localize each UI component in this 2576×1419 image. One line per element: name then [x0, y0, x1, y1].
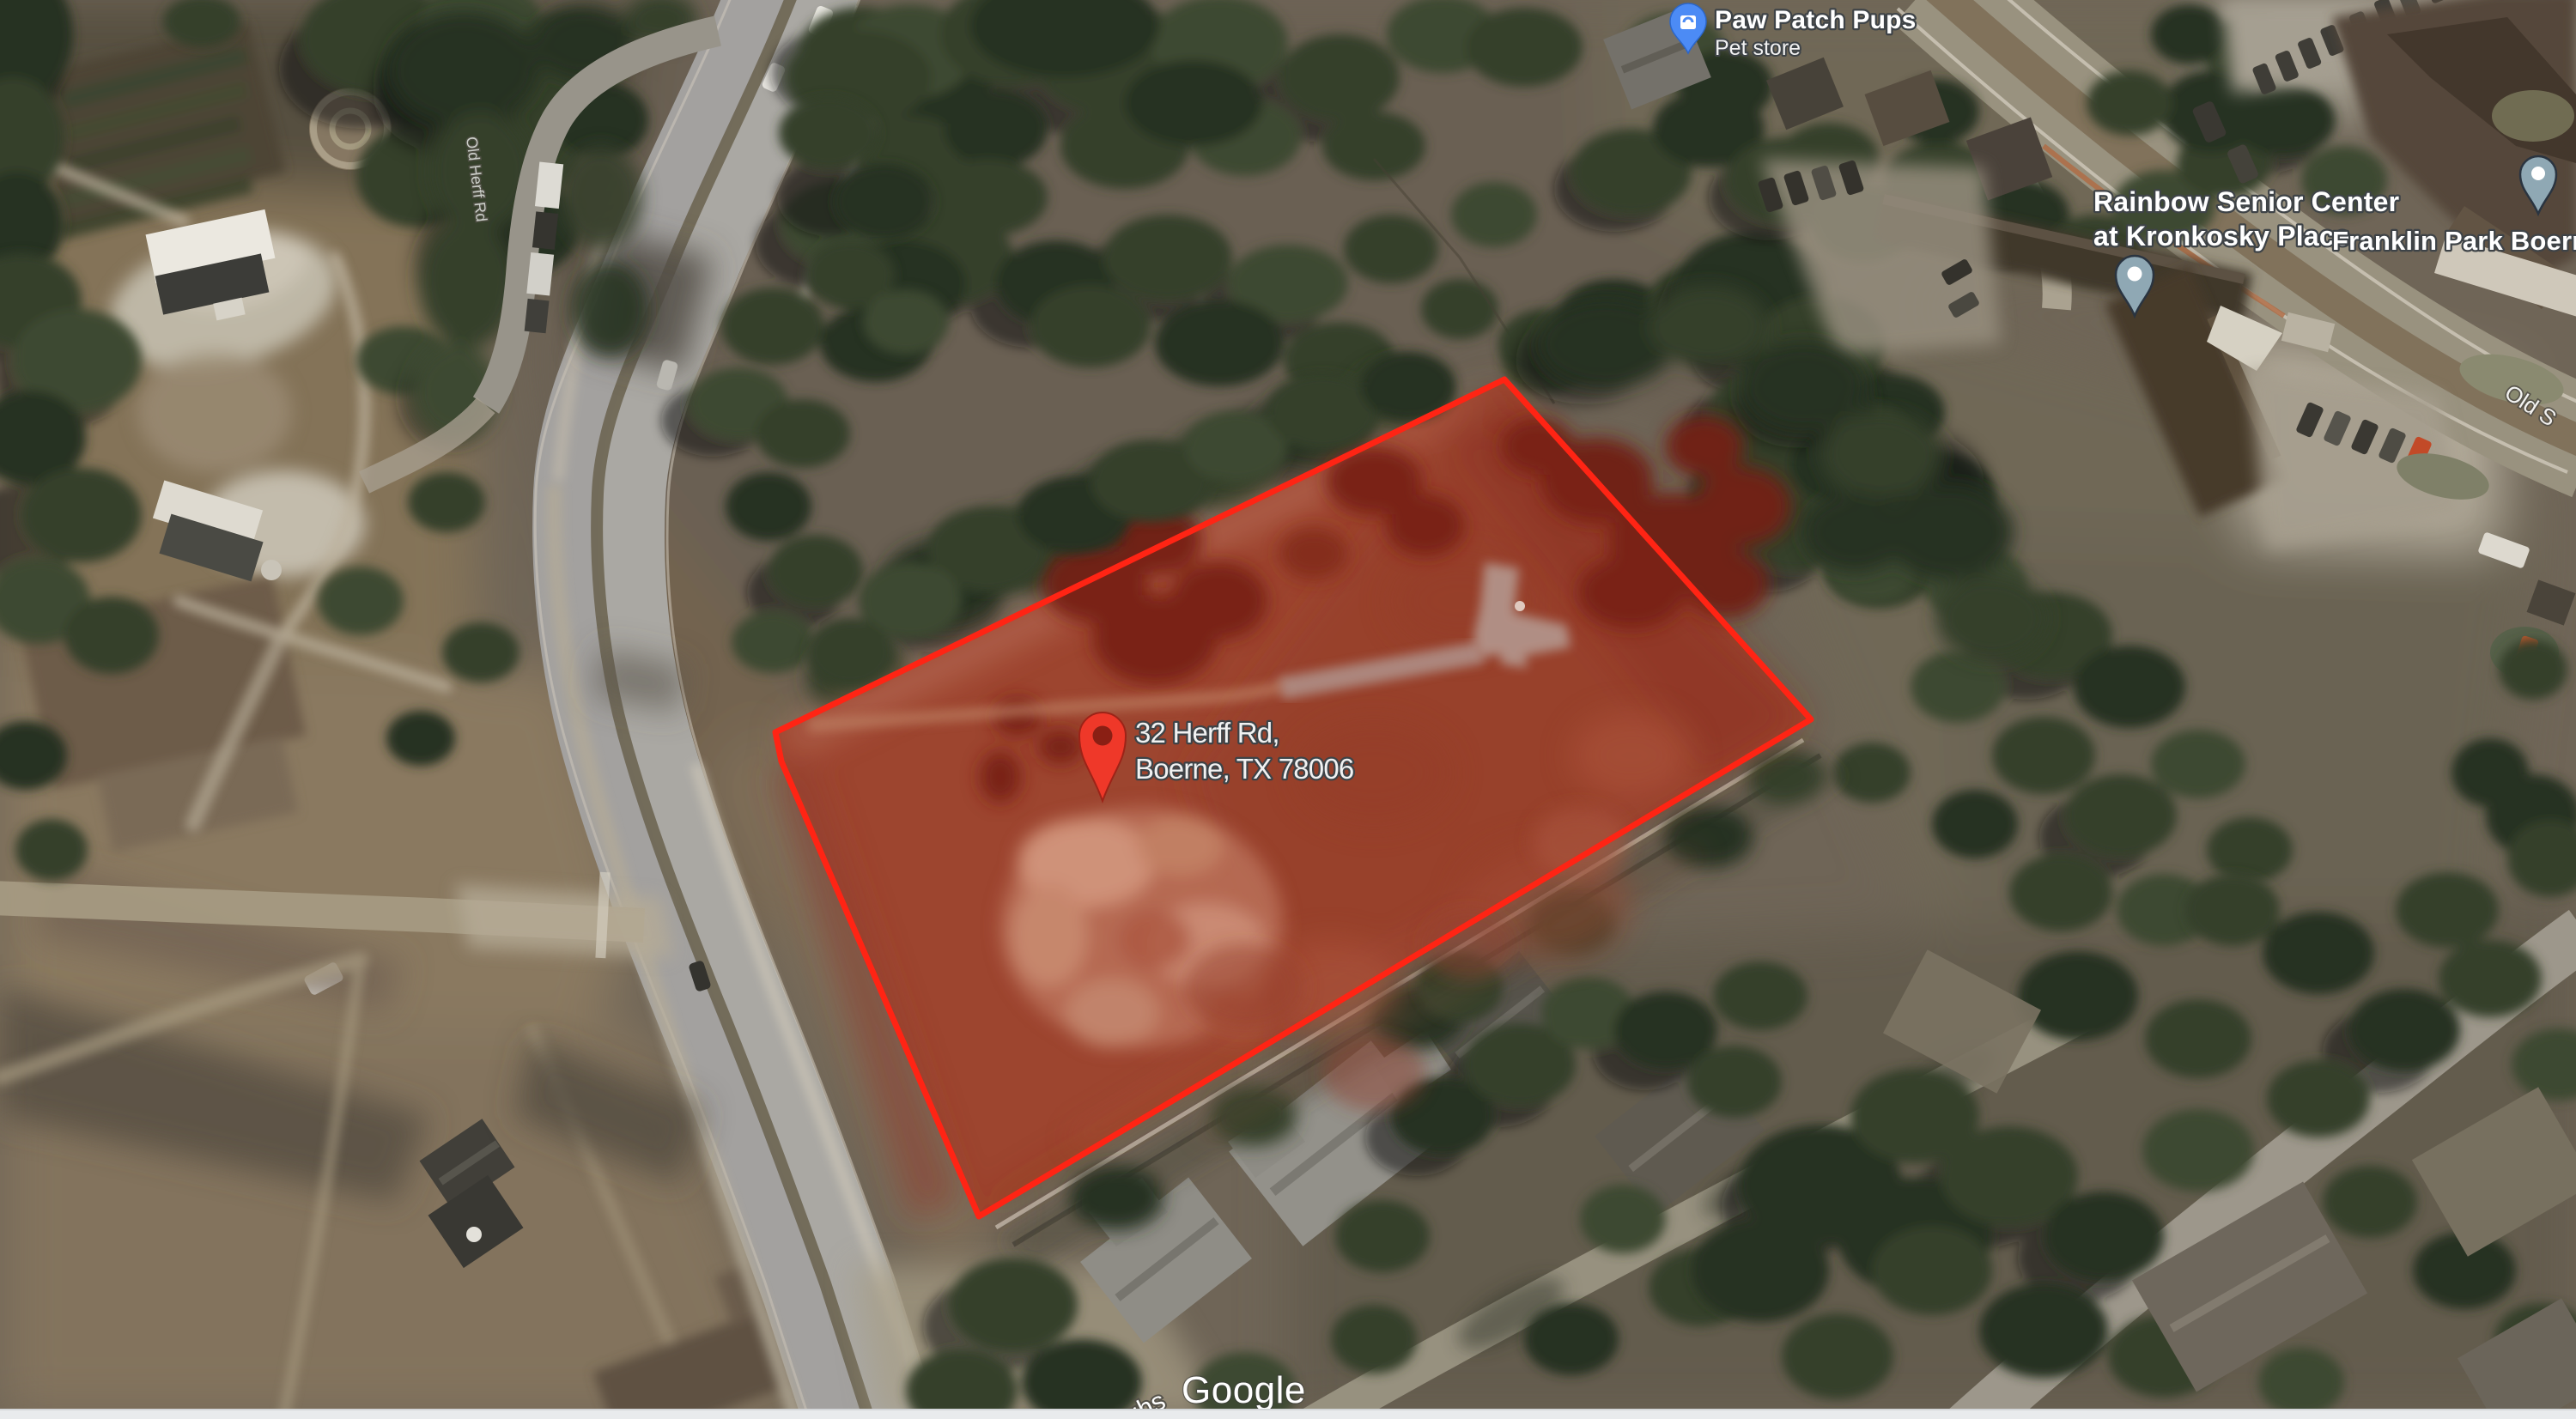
- svg-text:Pet store: Pet store: [1715, 36, 1801, 60]
- svg-text:Franklin Park Boerne: Franklin Park Boerne: [2332, 226, 2576, 256]
- svg-text:Rainbow Senior Center: Rainbow Senior Center: [2093, 186, 2399, 217]
- svg-text:Google: Google: [1182, 1369, 1306, 1411]
- svg-text:32 Herff Rd,: 32 Herff Rd,: [1135, 717, 1279, 749]
- svg-text:Boerne, TX 78006: Boerne, TX 78006: [1135, 753, 1353, 785]
- svg-text:at Kronkosky Place: at Kronkosky Place: [2093, 221, 2350, 252]
- svg-text:Paw Patch Pups: Paw Patch Pups: [1715, 6, 1917, 34]
